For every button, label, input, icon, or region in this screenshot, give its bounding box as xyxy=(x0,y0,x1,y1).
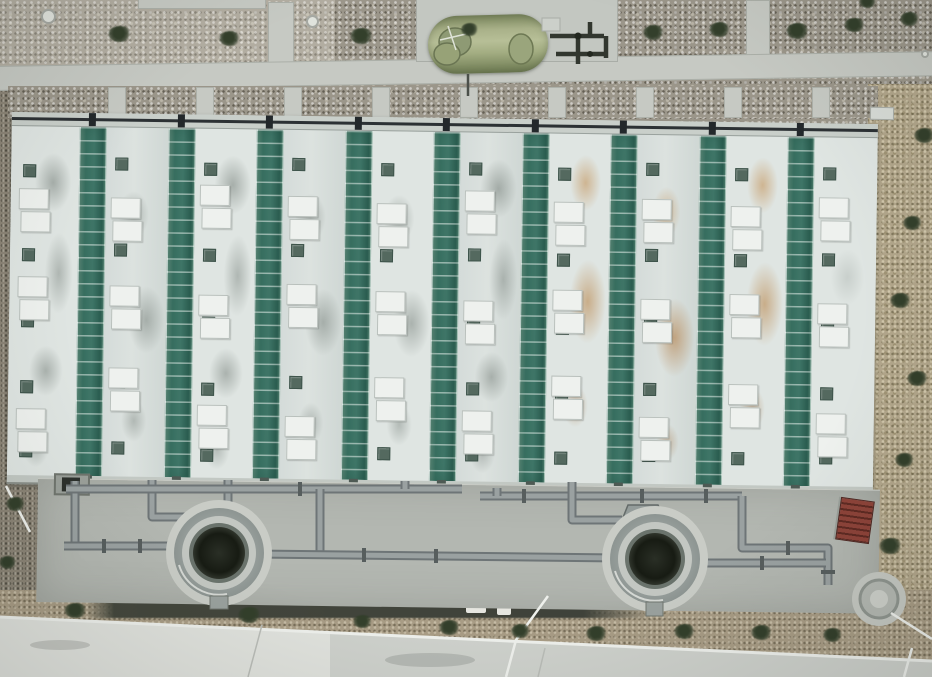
shrub xyxy=(907,371,929,386)
clarifier-outlet-tab xyxy=(646,602,663,616)
clarifier-basin xyxy=(193,527,245,579)
shrub xyxy=(844,18,866,32)
shrub xyxy=(903,216,923,230)
shrub xyxy=(674,624,696,639)
shrub xyxy=(6,497,26,511)
clarifier-basin xyxy=(629,533,681,585)
pipe-run-outline xyxy=(742,496,828,585)
pipe-flange xyxy=(522,489,526,503)
storage-tank-manway xyxy=(434,43,460,65)
pipe-run xyxy=(572,482,622,520)
road-streak xyxy=(30,640,90,650)
pipe-flange xyxy=(102,539,106,553)
shrub xyxy=(586,626,608,641)
pipe-flange xyxy=(434,549,438,563)
white-curb-line xyxy=(891,613,932,639)
shrub xyxy=(353,615,373,628)
piping-and-tanks-overlay xyxy=(0,0,932,677)
tank-valve xyxy=(587,51,593,57)
shrub xyxy=(643,25,665,40)
pipe-run-outline xyxy=(572,482,622,520)
shrub xyxy=(900,12,920,26)
shrub xyxy=(511,624,531,638)
shrub xyxy=(709,22,731,37)
shrub xyxy=(895,453,915,467)
pipe-flange xyxy=(786,541,790,555)
pipe-flange xyxy=(298,482,302,496)
pipe-flange xyxy=(362,548,366,562)
clarifier-outlet-tab xyxy=(210,596,228,609)
shrub xyxy=(786,23,810,39)
shrub xyxy=(238,607,262,623)
shrub xyxy=(64,603,88,618)
storage-tank-end-cap xyxy=(509,34,533,64)
manhole-cover xyxy=(306,15,319,28)
white-curb-line xyxy=(904,648,912,677)
tank-junction-box xyxy=(542,18,560,31)
road-joint xyxy=(248,625,262,677)
shrub xyxy=(0,556,17,569)
shrub xyxy=(751,625,773,640)
pipe-flange xyxy=(821,570,835,574)
pipe-flange xyxy=(704,489,708,503)
roof-corner-box xyxy=(870,107,894,120)
pipe-run xyxy=(742,496,828,585)
tank-valve xyxy=(575,33,582,40)
road-joint xyxy=(538,648,545,677)
shrub xyxy=(219,31,241,46)
red-staircase xyxy=(835,497,875,544)
road-curb-line xyxy=(0,617,932,661)
manhole-cover xyxy=(41,9,56,24)
shrub xyxy=(879,538,903,554)
small-round-pad-center xyxy=(870,590,888,608)
pipe-flange xyxy=(760,556,764,570)
shrub xyxy=(350,28,374,44)
shrub xyxy=(890,293,912,308)
shrub xyxy=(461,23,479,36)
shrub xyxy=(439,620,461,635)
pipe-flange xyxy=(138,539,142,553)
manhole-cover xyxy=(921,50,929,58)
shrub xyxy=(914,128,932,143)
pipe-flange xyxy=(640,489,644,503)
shrub xyxy=(108,26,132,42)
shrub xyxy=(823,628,843,642)
road-streak xyxy=(385,653,475,667)
aerial-photo-scene xyxy=(0,0,932,677)
